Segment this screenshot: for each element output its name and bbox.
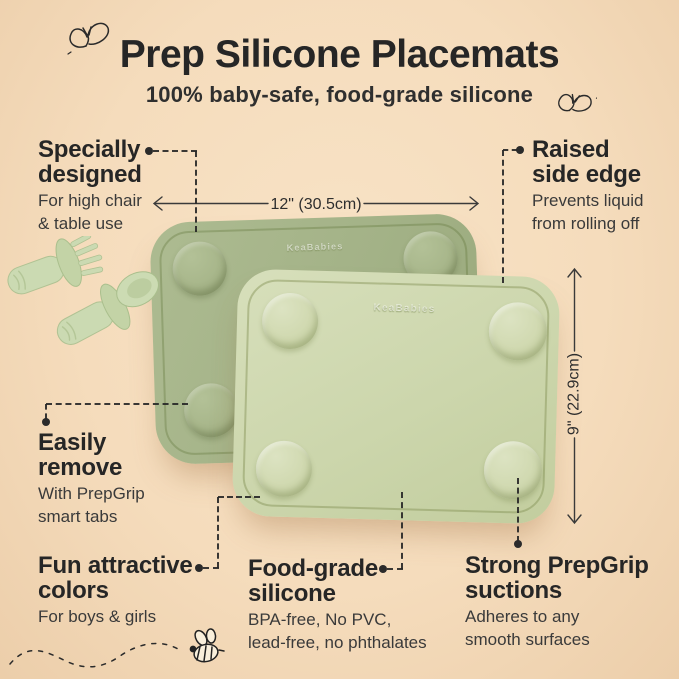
callout-food-grade: Food-grade silicone BPA-free, No PVC, le… bbox=[248, 556, 427, 653]
callout-line bbox=[46, 403, 188, 405]
callout-raised-side-edge: Raised side edge Prevents liquid from ro… bbox=[532, 137, 644, 234]
callout-line bbox=[217, 497, 219, 568]
callout-line bbox=[517, 478, 519, 542]
callout-line bbox=[503, 149, 517, 151]
height-dimension-label: 9" (22.9cm) bbox=[566, 353, 583, 435]
placemat-front-light-green: KeaBabies bbox=[232, 269, 561, 525]
callout-line bbox=[153, 150, 197, 152]
callout-dot bbox=[145, 147, 153, 155]
page-subtitle: 100% baby-safe, food-grade silicone bbox=[0, 82, 679, 108]
suction-pad bbox=[172, 241, 228, 297]
callout-dot bbox=[516, 146, 524, 154]
suction-pad bbox=[261, 292, 319, 350]
callout-dot bbox=[514, 540, 522, 548]
callout-line bbox=[502, 150, 504, 283]
suction-pad bbox=[183, 382, 239, 438]
suction-pad bbox=[483, 440, 543, 500]
brand-logo: KeaBabies bbox=[349, 302, 459, 316]
callout-dot bbox=[379, 565, 387, 573]
page-title: Prep Silicone Placemats bbox=[0, 34, 679, 77]
width-dimension-label: 12" (30.5cm) bbox=[270, 196, 361, 213]
callout-easily-remove: Easily remove With PrepGrip smart tabs bbox=[38, 430, 145, 527]
infographic-canvas: Prep Silicone Placemats 100% baby-safe, … bbox=[0, 0, 679, 679]
header: Prep Silicone Placemats 100% baby-safe, … bbox=[0, 34, 679, 108]
callout-line bbox=[45, 404, 47, 419]
width-dimension: 12" (30.5cm) bbox=[148, 192, 484, 216]
callout-specially-designed: Specially designed For high chair & tabl… bbox=[38, 137, 142, 234]
suction-pad bbox=[255, 440, 313, 498]
callout-line bbox=[195, 151, 197, 232]
suction-pad bbox=[488, 302, 548, 362]
callout-dot bbox=[42, 418, 50, 426]
callout-dot bbox=[195, 564, 203, 572]
brand-logo: KeaBabies bbox=[260, 240, 370, 253]
callout-line bbox=[218, 496, 260, 498]
baby-utensils-illustration bbox=[0, 236, 166, 368]
callout-strong-suctions: Strong PrepGrip suctions Adheres to any … bbox=[465, 553, 649, 650]
callout-line bbox=[401, 492, 403, 569]
bee-icon bbox=[8, 622, 233, 678]
height-dimension: 9" (22.9cm) bbox=[558, 266, 592, 526]
callout-fun-colors: Fun attractive colors For boys & girls bbox=[38, 553, 193, 627]
